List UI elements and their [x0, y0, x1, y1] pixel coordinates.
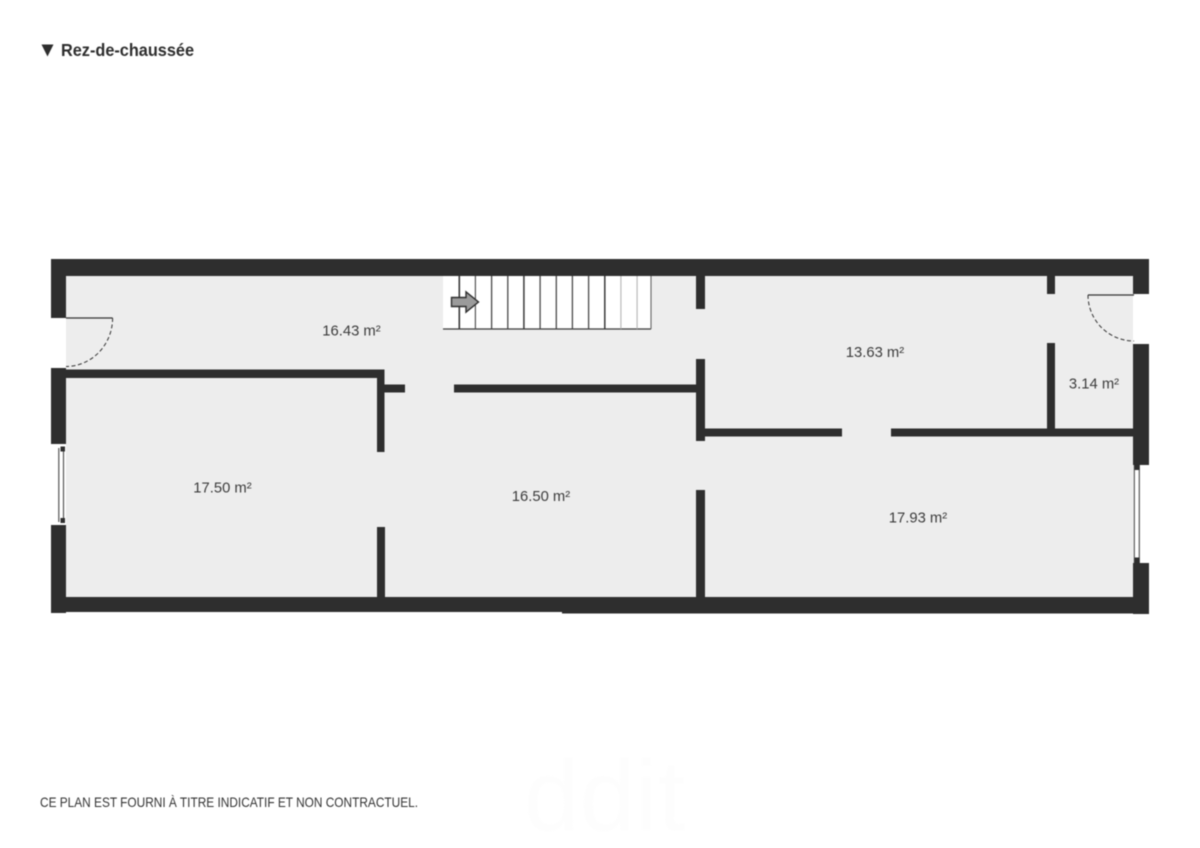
svg-text:16.43 m²: 16.43 m²: [322, 324, 380, 340]
svg-text:Rez-de-chaussée: Rez-de-chaussée: [61, 40, 194, 60]
svg-text:17.50 m²: 17.50 m²: [193, 481, 251, 497]
svg-text:CE PLAN EST FOURNI À TITRE IND: CE PLAN EST FOURNI À TITRE INDICATIF ET …: [40, 794, 418, 810]
svg-text:16.50 m²: 16.50 m²: [512, 489, 570, 505]
svg-text:ddit: ddit: [524, 740, 685, 848]
svg-text:17.93 m²: 17.93 m²: [889, 511, 947, 527]
svg-text:3.14 m²: 3.14 m²: [1069, 377, 1119, 393]
svg-text:13.63 m²: 13.63 m²: [846, 345, 904, 361]
